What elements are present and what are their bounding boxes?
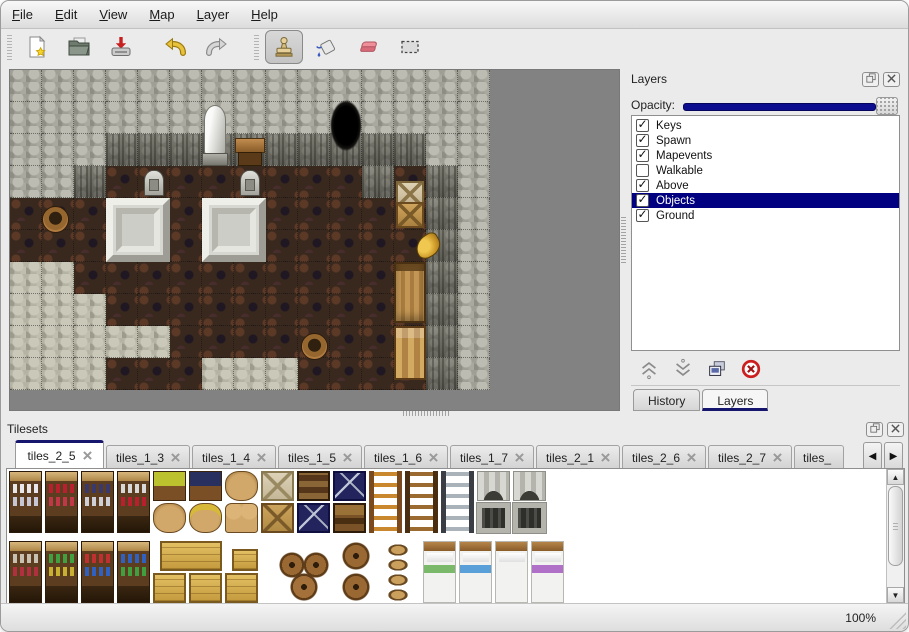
- new-button[interactable]: [18, 30, 56, 64]
- eraser-button[interactable]: [349, 30, 387, 64]
- tile-bed-blue[interactable]: [459, 541, 492, 603]
- tab-close-icon[interactable]: [257, 449, 266, 467]
- tile-cratex-tan[interactable]: [261, 503, 294, 533]
- tile-cratey-plain[interactable]: [153, 573, 186, 603]
- layer-name-label: Walkable: [656, 165, 703, 177]
- tileset-view[interactable]: ▲ ▼: [6, 468, 905, 604]
- save-icon: [109, 35, 133, 59]
- move-layer-up-button[interactable]: [637, 360, 661, 382]
- menu-bar: FileEditViewMapLayerHelp: [1, 1, 908, 29]
- tile-planter-dark[interactable]: [189, 471, 222, 501]
- tilesets-dock: Tilesets tiles_2_5tiles_1_3tiles_1_4tile…: [5, 419, 906, 603]
- dock-tab-bar: HistoryLayers: [633, 389, 768, 411]
- toolbar-drag-handle[interactable]: [254, 34, 259, 60]
- tile-bed-white[interactable]: [495, 541, 528, 603]
- layer-visibility-checkbox[interactable]: ✓: [636, 194, 649, 207]
- tile-chest-front[interactable]: [333, 503, 366, 533]
- scroll-down-button[interactable]: ▼: [887, 587, 904, 603]
- undo-button[interactable]: [156, 30, 194, 64]
- stamp-tool-icon: [272, 35, 296, 59]
- map-object-desk[interactable]: [394, 326, 426, 380]
- move-layer-up-icon: [638, 358, 660, 385]
- tileset-tab-label: tiles_1_4: [202, 451, 250, 465]
- tile-chest-band[interactable]: [297, 471, 330, 501]
- opacity-slider-handle[interactable]: [876, 97, 898, 115]
- tileset-tab-tiles_1_4[interactable]: tiles_1_4: [192, 445, 276, 469]
- stamp-button[interactable]: [265, 30, 303, 64]
- tileset-tab-tiles_1_6[interactable]: tiles_1_6: [364, 445, 448, 469]
- layer-row-walkable[interactable]: Walkable: [632, 163, 899, 178]
- map-object-crates[interactable]: [394, 179, 426, 230]
- tile-cratex-pale[interactable]: [261, 471, 294, 501]
- close-icon: [887, 70, 896, 88]
- tilesets-panel-titlebar: Tilesets: [7, 421, 904, 437]
- tileset-tab-tiles_2_6[interactable]: tiles_2_6: [622, 445, 706, 469]
- layers-dock: Layers Opacity: ✓Keys✓Spawn✓MapeventsWal…: [629, 69, 902, 414]
- opacity-label: Opacity:: [631, 98, 675, 112]
- tile-cratenavy-plain[interactable]: [297, 503, 330, 533]
- tab-close-icon[interactable]: [515, 449, 524, 467]
- layer-name-label: Keys: [656, 120, 682, 132]
- menu-item-map[interactable]: Map: [138, 2, 185, 27]
- tile-bed-green[interactable]: [423, 541, 456, 603]
- delete-layer-button[interactable]: [739, 360, 763, 382]
- tilesets-close-button[interactable]: [887, 422, 904, 437]
- tile-ladder-brown[interactable]: [405, 471, 438, 533]
- zoom-level-label: 100%: [845, 611, 876, 625]
- scrollbar-thumb[interactable]: [888, 486, 903, 566]
- status-bar: 100%: [1, 603, 908, 631]
- tab-close-icon[interactable]: [429, 449, 438, 467]
- tile-cratey-small[interactable]: [232, 549, 258, 571]
- close-icon: [891, 420, 900, 438]
- arrow-down-icon: ▼: [892, 591, 900, 600]
- tile-pots-stack4[interactable]: [383, 541, 412, 603]
- tileset-tab-label: tiles_1_5: [288, 451, 336, 465]
- float-icon: [866, 70, 876, 88]
- vertical-splitter-handle[interactable]: [621, 215, 626, 263]
- layer-name-label: Above: [656, 180, 689, 192]
- map-object-platform[interactable]: [106, 198, 170, 262]
- tileset-tab-label: tiles_1_3: [116, 451, 164, 465]
- layer-row-objects[interactable]: ✓Objects: [632, 193, 899, 208]
- fill-bucket-icon: [314, 35, 338, 59]
- map-object-gravestone[interactable]: [234, 166, 266, 198]
- window-resize-grip[interactable]: [886, 609, 906, 629]
- tile-shelf-food3[interactable]: [81, 541, 114, 603]
- menu-item-help[interactable]: Help: [240, 2, 289, 27]
- tileset-tab-tiles_1_3[interactable]: tiles_1_3: [106, 445, 190, 469]
- map-object-table[interactable]: [234, 136, 266, 168]
- dock-tab-layers[interactable]: Layers: [702, 389, 768, 411]
- tile-cratey-plain[interactable]: [225, 573, 258, 603]
- open-button[interactable]: [60, 30, 98, 64]
- layers-panel-titlebar: Layers: [631, 71, 900, 87]
- map-object-platform[interactable]: [202, 198, 266, 262]
- rect-select-icon: [398, 35, 422, 59]
- tileset-tab-tiles[interactable]: tiles_: [794, 445, 844, 469]
- tab-close-icon[interactable]: [773, 449, 782, 467]
- tilesets-float-button[interactable]: [866, 422, 883, 437]
- layer-visibility-checkbox[interactable]: ✓: [636, 149, 649, 162]
- map-object-gravestone[interactable]: [138, 166, 170, 198]
- layer-visibility-checkbox[interactable]: ✓: [636, 179, 649, 192]
- map-object-cabinet[interactable]: [394, 262, 426, 323]
- eraser-icon: [356, 35, 380, 59]
- save-button[interactable]: [102, 30, 140, 64]
- tileset-tab-label: tiles_2_1: [546, 451, 594, 465]
- tileset-sprites: [7, 469, 904, 603]
- scroll-up-button[interactable]: ▲: [887, 469, 904, 485]
- map-objects-layer: [10, 70, 490, 390]
- tileset-tabs: tiles_2_5tiles_1_3tiles_1_4tiles_1_5tile…: [15, 440, 846, 469]
- tile-shelf-wine[interactable]: [45, 471, 78, 533]
- select-button[interactable]: [391, 30, 429, 64]
- tileset-tab-tiles_1_7[interactable]: tiles_1_7: [450, 445, 534, 469]
- toolbar-buttons: [5, 30, 433, 64]
- layer-row-mapevents[interactable]: ✓Mapevents: [632, 148, 899, 163]
- tileset-scrollbar: ▲ ▼: [886, 469, 904, 603]
- layer-visibility-checkbox[interactable]: ✓: [636, 119, 649, 132]
- map-object-barrel[interactable]: [298, 328, 330, 363]
- tileset-tab-label: tiles_2_6: [632, 451, 680, 465]
- tile-ladder-orange[interactable]: [369, 471, 402, 533]
- tileset-tab-label: tiles_1_6: [374, 451, 422, 465]
- tileset-tab-tiles_1_5[interactable]: tiles_1_5: [278, 445, 362, 469]
- tile-cratenavy-z[interactable]: [333, 471, 366, 501]
- tile-shelf-food2[interactable]: [45, 541, 78, 603]
- tile-planter-yellow[interactable]: [153, 471, 186, 501]
- layer-visibility-checkbox[interactable]: ✓: [636, 134, 649, 147]
- tile-sack-big[interactable]: [225, 471, 258, 501]
- map-object-barrel[interactable]: [39, 201, 71, 239]
- move-layer-down-button[interactable]: [671, 360, 695, 382]
- tile-cratey-wide[interactable]: [160, 541, 222, 571]
- tile-shelf-dishes[interactable]: [9, 471, 42, 533]
- duplicate-layer-icon: [706, 358, 728, 385]
- layer-row-ground[interactable]: ✓Ground: [632, 208, 899, 223]
- arrow-left-icon: ◀: [869, 451, 877, 462]
- redo-icon: [205, 35, 229, 59]
- layer-name-label: Mapevents: [656, 150, 712, 162]
- layer-name-label: Spawn: [656, 135, 691, 147]
- tile-arch-l[interactable]: [477, 471, 510, 501]
- tile-barrels-trio[interactable]: [275, 551, 333, 603]
- menu-item-edit[interactable]: Edit: [44, 2, 88, 27]
- undo-icon: [163, 35, 187, 59]
- horizontal-splitter-handle[interactable]: [403, 411, 449, 416]
- fill-button[interactable]: [307, 30, 345, 64]
- tile-ladder-steel[interactable]: [441, 471, 474, 533]
- tile-shelf-pots[interactable]: [81, 471, 114, 533]
- menu-item-view[interactable]: View: [88, 2, 138, 27]
- layers-float-button[interactable]: [862, 72, 879, 87]
- tileset-tab-bar: tiles_2_5tiles_1_3tiles_1_4tiles_1_5tile…: [6, 439, 905, 469]
- menu-item-file[interactable]: File: [1, 2, 44, 27]
- tile-shelf-jars[interactable]: [117, 471, 150, 533]
- layer-visibility-checkbox[interactable]: [636, 164, 649, 177]
- layers-close-button[interactable]: [883, 72, 900, 87]
- layer-action-buttons: [631, 357, 900, 386]
- tileset-tab-label: tiles_1_7: [460, 451, 508, 465]
- layer-row-above[interactable]: ✓Above: [632, 178, 899, 193]
- tab-close-icon[interactable]: [601, 449, 610, 467]
- tab-close-icon[interactable]: [687, 449, 696, 467]
- layer-row-keys[interactable]: ✓Keys: [632, 118, 899, 133]
- tile-sack-pile[interactable]: [225, 503, 258, 533]
- duplicate-layer-button[interactable]: [705, 360, 729, 382]
- tile-sack-full[interactable]: [153, 503, 186, 533]
- tile-cratey-plain[interactable]: [189, 573, 222, 603]
- map-object-cave[interactable]: [327, 92, 365, 172]
- map-canvas[interactable]: [9, 69, 620, 411]
- layers-panel-title: Layers: [631, 72, 667, 86]
- tileset-tab-label: tiles_: [803, 451, 831, 465]
- app-window: FileEditViewMapLayerHelp Layers Opacity:: [0, 0, 909, 632]
- arrow-right-icon: ▶: [890, 451, 898, 462]
- tab-close-icon[interactable]: [83, 447, 92, 465]
- tab-close-icon[interactable]: [171, 449, 180, 467]
- layer-name-label: Ground: [656, 210, 694, 222]
- tileset-tab-label: tiles_2_7: [718, 451, 766, 465]
- tab-scroll-left-button[interactable]: ◀: [863, 442, 882, 470]
- map-object-horn[interactable]: [412, 232, 444, 264]
- tileset-tab-tiles_2_1[interactable]: tiles_2_1: [536, 445, 620, 469]
- tab-scroll-right-button[interactable]: ▶: [884, 442, 903, 470]
- tile-barrels-stack2[interactable]: [340, 541, 373, 603]
- layer-visibility-checkbox[interactable]: ✓: [636, 209, 649, 222]
- opacity-row: Opacity:: [631, 95, 900, 115]
- tileset-tab-label: tiles_2_5: [27, 449, 75, 463]
- tile-arch-r[interactable]: [513, 471, 546, 501]
- dock-tab-history[interactable]: History: [633, 389, 700, 411]
- tileset-tab-tiles_2_7[interactable]: tiles_2_7: [708, 445, 792, 469]
- move-layer-down-icon: [672, 358, 694, 385]
- tile-shelf-food1[interactable]: [9, 541, 42, 603]
- tab-scroll-buttons: ◀ ▶: [863, 442, 903, 470]
- open-folder-icon: [67, 35, 91, 59]
- menu-items: FileEditViewMapLayerHelp: [1, 2, 289, 27]
- float-icon: [870, 420, 880, 438]
- redo-button[interactable]: [198, 30, 236, 64]
- tile-shelf-food4[interactable]: [117, 541, 150, 603]
- map-object-statue[interactable]: [199, 102, 231, 168]
- toolbar-drag-handle[interactable]: [7, 34, 12, 60]
- layer-name-label: Objects: [656, 195, 695, 207]
- toolbar: [1, 29, 908, 65]
- tile-door-r[interactable]: [513, 503, 546, 533]
- new-file-icon: [25, 35, 49, 59]
- layer-list: ✓Keys✓Spawn✓MapeventsWalkable✓Above✓Obje…: [631, 115, 900, 351]
- tilesets-panel-title: Tilesets: [7, 422, 48, 436]
- opacity-slider-track[interactable]: [683, 103, 876, 111]
- arrow-up-icon: ▲: [892, 473, 900, 482]
- tileset-tab-tiles_2_5[interactable]: tiles_2_5: [15, 440, 104, 469]
- delete-layer-icon: [740, 358, 762, 385]
- layer-row-spawn[interactable]: ✓Spawn: [632, 133, 899, 148]
- menu-item-layer[interactable]: Layer: [186, 2, 241, 27]
- tile-sack-open[interactable]: [189, 503, 222, 533]
- tab-close-icon[interactable]: [343, 449, 352, 467]
- tile-bed-purple[interactable]: [531, 541, 564, 603]
- tile-door-l[interactable]: [477, 503, 510, 533]
